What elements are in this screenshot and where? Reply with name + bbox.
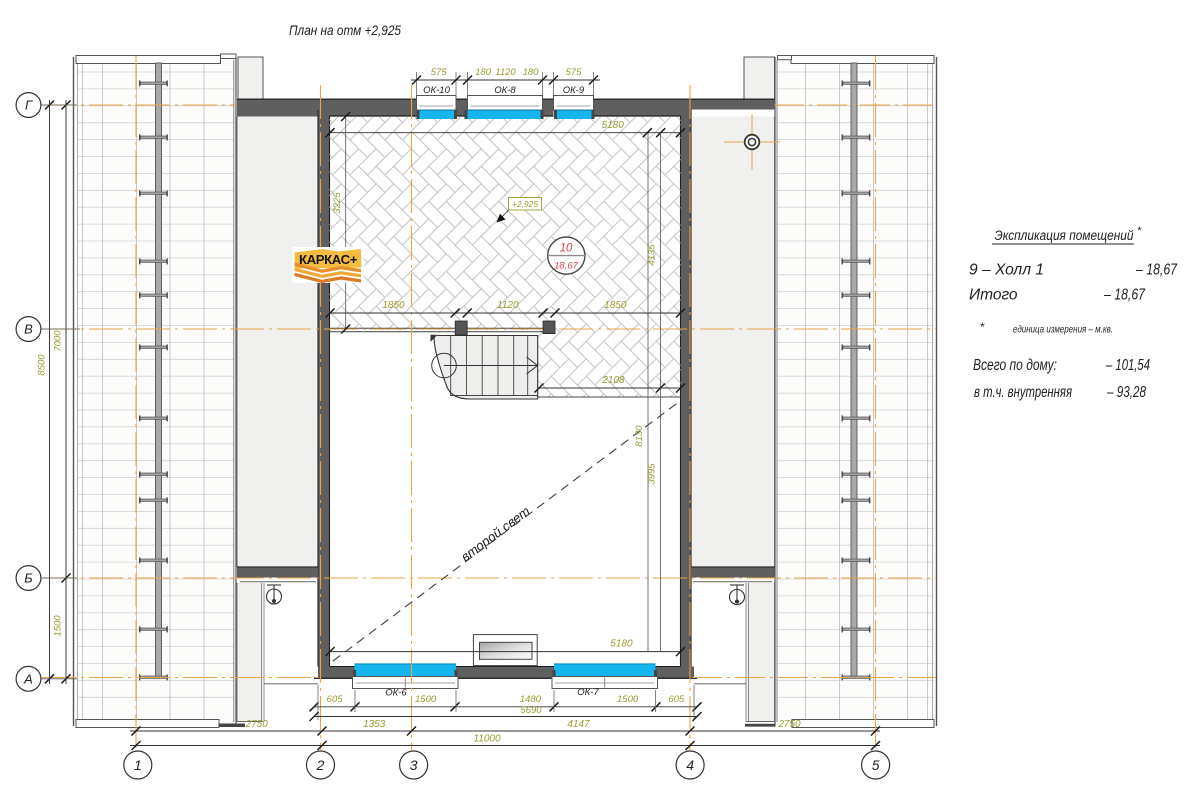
svg-text:5180: 5180	[602, 120, 625, 131]
svg-text:4: 4	[686, 757, 694, 773]
svg-text:КАРКАС+: КАРКАС+	[299, 252, 358, 267]
svg-text:– 101,54: – 101,54	[1105, 357, 1150, 374]
svg-text:– 93,28: – 93,28	[1106, 384, 1146, 401]
svg-text:11000: 11000	[473, 734, 501, 745]
svg-text:в т.ч. внутренняя: в т.ч. внутренняя	[974, 384, 1072, 401]
svg-text:ОК-8: ОК-8	[494, 85, 516, 96]
svg-text:18,67: 18,67	[554, 261, 578, 272]
svg-text:1500: 1500	[415, 694, 437, 705]
svg-text:180: 180	[523, 67, 540, 78]
svg-text:2: 2	[316, 757, 325, 773]
svg-text:2750: 2750	[777, 719, 801, 730]
svg-text:4147: 4147	[567, 719, 590, 730]
svg-text:ОК-9: ОК-9	[563, 85, 585, 96]
svg-text:1120: 1120	[497, 300, 519, 311]
svg-text:5180: 5180	[610, 639, 633, 650]
svg-text:575: 575	[431, 67, 448, 78]
svg-text:1120: 1120	[495, 67, 516, 78]
svg-text:*: *	[1137, 225, 1142, 237]
svg-text:2108: 2108	[601, 375, 625, 386]
svg-text:575: 575	[566, 67, 583, 78]
svg-text:Б: Б	[24, 571, 33, 586]
svg-text:1500: 1500	[617, 694, 639, 705]
svg-text:8130: 8130	[634, 425, 645, 447]
svg-text:А: А	[23, 671, 33, 686]
svg-text:Г: Г	[25, 98, 33, 113]
svg-text:3995: 3995	[647, 463, 658, 485]
svg-text:План на отм +2,925: План на отм +2,925	[289, 23, 401, 38]
svg-text:4135: 4135	[647, 244, 658, 266]
svg-text:ОК-6: ОК-6	[385, 688, 407, 699]
svg-text:9 – Холл 1: 9 – Холл 1	[969, 262, 1044, 279]
svg-text:ОК-7: ОК-7	[577, 687, 599, 698]
svg-text:3225: 3225	[332, 192, 343, 214]
svg-text:10: 10	[560, 243, 573, 255]
svg-text:5: 5	[872, 757, 880, 773]
svg-text:1480: 1480	[520, 694, 542, 705]
svg-text:605: 605	[668, 694, 685, 705]
svg-text:Итого: Итого	[969, 287, 1018, 304]
svg-text:*: *	[980, 320, 985, 334]
svg-text:1: 1	[134, 757, 142, 773]
svg-text:7000: 7000	[53, 330, 64, 352]
svg-text:Экспликация помещений: Экспликация помещений	[995, 228, 1134, 243]
svg-text:1850: 1850	[382, 300, 405, 311]
svg-text:1500: 1500	[53, 615, 64, 637]
svg-text:Всего по дому:: Всего по дому:	[973, 357, 1057, 374]
svg-text:605: 605	[327, 694, 344, 705]
svg-text:– 18,67: – 18,67	[1135, 262, 1178, 279]
svg-text:3: 3	[410, 757, 418, 773]
svg-text:ОК-10: ОК-10	[423, 85, 450, 96]
svg-text:2750: 2750	[245, 719, 269, 730]
svg-text:5690: 5690	[520, 705, 542, 716]
svg-text:1353: 1353	[363, 719, 386, 730]
svg-text:+2,925: +2,925	[512, 199, 539, 209]
svg-text:180: 180	[475, 67, 492, 78]
svg-text:– 18,67: – 18,67	[1103, 287, 1146, 304]
svg-text:1850: 1850	[604, 300, 627, 311]
svg-text:8500: 8500	[37, 354, 48, 376]
svg-text:В: В	[24, 322, 33, 337]
svg-text:единица измерения – м.кв.: единица измерения – м.кв.	[1013, 324, 1113, 336]
